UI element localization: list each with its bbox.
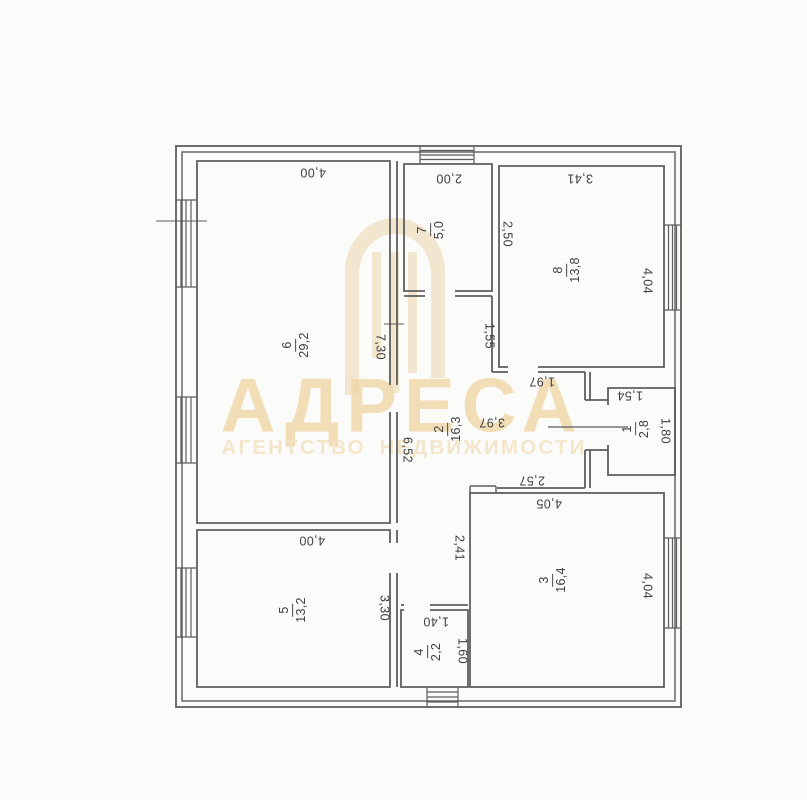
dimension-label: 4,04 — [641, 268, 654, 294]
window-icon-top — [420, 146, 474, 164]
room-1-walls — [548, 388, 675, 475]
dimension-label: 2,00 — [436, 172, 462, 185]
room-area: 2,8 — [637, 420, 652, 438]
dimension-label: 1,54 — [617, 389, 643, 402]
room-label: 12,8 — [620, 420, 652, 438]
room-number: 3 — [537, 573, 553, 586]
dimension-label: 1,55 — [483, 323, 496, 349]
room-number: 2 — [432, 422, 448, 435]
dimension-label: 3,30 — [378, 595, 391, 621]
dimension-label: 1,80 — [659, 418, 672, 444]
room-area: 16,4 — [554, 567, 569, 593]
room-label: 216,3 — [432, 416, 464, 442]
window-icon-left-2 — [176, 397, 196, 463]
room-area: 13,8 — [568, 257, 583, 283]
room-label: 316,4 — [537, 567, 569, 593]
room-number: 4 — [412, 645, 428, 658]
room-label: 513,2 — [277, 597, 309, 623]
window-icon-bottom — [427, 687, 458, 707]
floor-plan-drawing — [0, 0, 807, 800]
room-label: 629,2 — [280, 332, 312, 358]
dimension-label: 4,00 — [300, 166, 326, 179]
room-area: 5,0 — [432, 221, 447, 239]
floor-plan-page: АДРЕСА АГЕНТСТВО НЕДВИЖИМОСТИ — [0, 0, 807, 800]
dimension-label: 4,00 — [299, 534, 325, 547]
dimension-label: 1,97 — [529, 375, 555, 388]
room-area: 29,2 — [297, 332, 312, 358]
room-label: 42,2 — [412, 643, 444, 661]
window-icon-right-2 — [664, 538, 681, 628]
window-icon-left-3 — [176, 568, 196, 637]
room-label: 75,0 — [415, 221, 447, 239]
dimension-label: 6,52 — [401, 437, 414, 463]
dimension-label: 3,41 — [567, 172, 593, 185]
window-icon-right-1 — [664, 225, 681, 310]
room-number: 6 — [280, 338, 296, 351]
dimension-label: 1,60 — [456, 638, 469, 664]
dimension-label: 2,50 — [501, 221, 514, 247]
room-number: 5 — [277, 603, 293, 616]
dimension-label: 2,57 — [519, 474, 545, 487]
room-number: 1 — [620, 422, 636, 435]
dimension-ticks — [156, 221, 404, 324]
room-label: 813,8 — [551, 257, 583, 283]
room-area: 13,2 — [294, 597, 309, 623]
dimension-label: 2,41 — [453, 535, 466, 561]
room-area: 2,2 — [429, 643, 444, 661]
dimension-label: 4,04 — [641, 573, 654, 599]
room-number: 8 — [551, 263, 567, 276]
window-icon-left-1 — [176, 200, 196, 287]
dimension-label: 1,40 — [423, 615, 449, 628]
hall-walls — [497, 372, 608, 488]
dimension-label: 3,97 — [479, 416, 505, 429]
dimension-label: 7,30 — [374, 334, 387, 360]
dimension-label: 4,05 — [536, 497, 562, 510]
room-number: 7 — [415, 223, 431, 236]
room-area: 16,3 — [449, 416, 464, 442]
